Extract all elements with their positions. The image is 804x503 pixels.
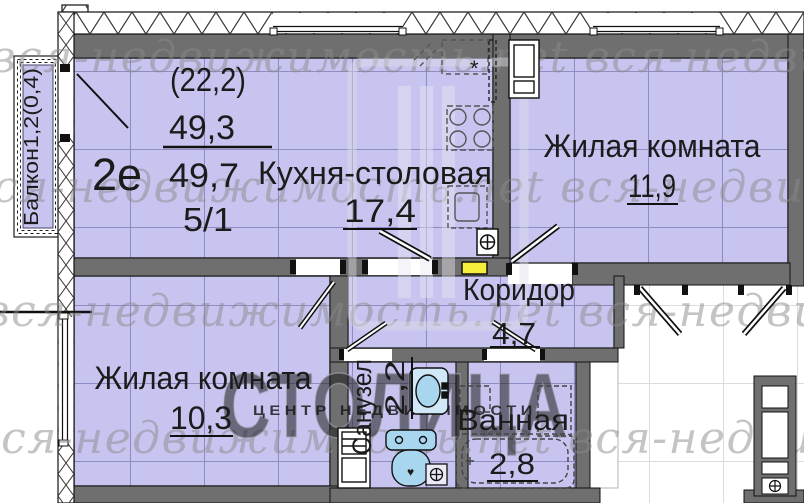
bathroom-name: Ванная [457, 404, 569, 437]
wardrobe-icon [509, 40, 539, 98]
service-shaft [754, 376, 796, 496]
wall-bottom-middle [330, 488, 600, 503]
wall-living-right-bottom [572, 263, 790, 285]
washbasin-icon [410, 368, 448, 414]
balcony-label: Балкон1,2(0,4) [21, 68, 43, 226]
stat-total-area: 49,7 [169, 157, 239, 195]
kitchen-area: 17,4 [344, 193, 416, 229]
living-right-area: 11,9 [628, 168, 676, 204]
wc-vent-icon [426, 464, 447, 485]
stat-floor: 5/1 [183, 201, 233, 238]
corridor-area: 4,7 [492, 316, 536, 351]
asterisk-mark: * [470, 56, 479, 81]
shaft-vent-icon [770, 481, 781, 492]
corridor-name: Коридор [463, 272, 575, 307]
vent-shaft-icon [477, 229, 498, 255]
wc-area: 2,2 [380, 360, 410, 416]
wall-bottom-left [58, 486, 348, 503]
living-right-name: Жилая комната [544, 128, 761, 164]
living-left-area: 10,3 [170, 400, 232, 436]
wc-name: Санузел [347, 359, 377, 455]
bathroom-area: 2,8 [489, 448, 535, 481]
floor-plan-svg: вся-недвижимость.пet вся-недвижимост вся… [0, 0, 804, 503]
door-opening-living-left [296, 259, 340, 275]
kitchen-name: Кухня-столовая [258, 155, 492, 191]
heart-mark: ♥ [407, 465, 414, 479]
floor-plan-image: вся-недвижимость.пet вся-недвижимост вся… [0, 0, 804, 503]
stat-living-area: 49,3 [169, 109, 235, 147]
stat-secondary-area: (22,2) [170, 61, 246, 98]
unit-label: 2е [92, 149, 142, 200]
living-left-name: Жилая комната [95, 360, 312, 396]
